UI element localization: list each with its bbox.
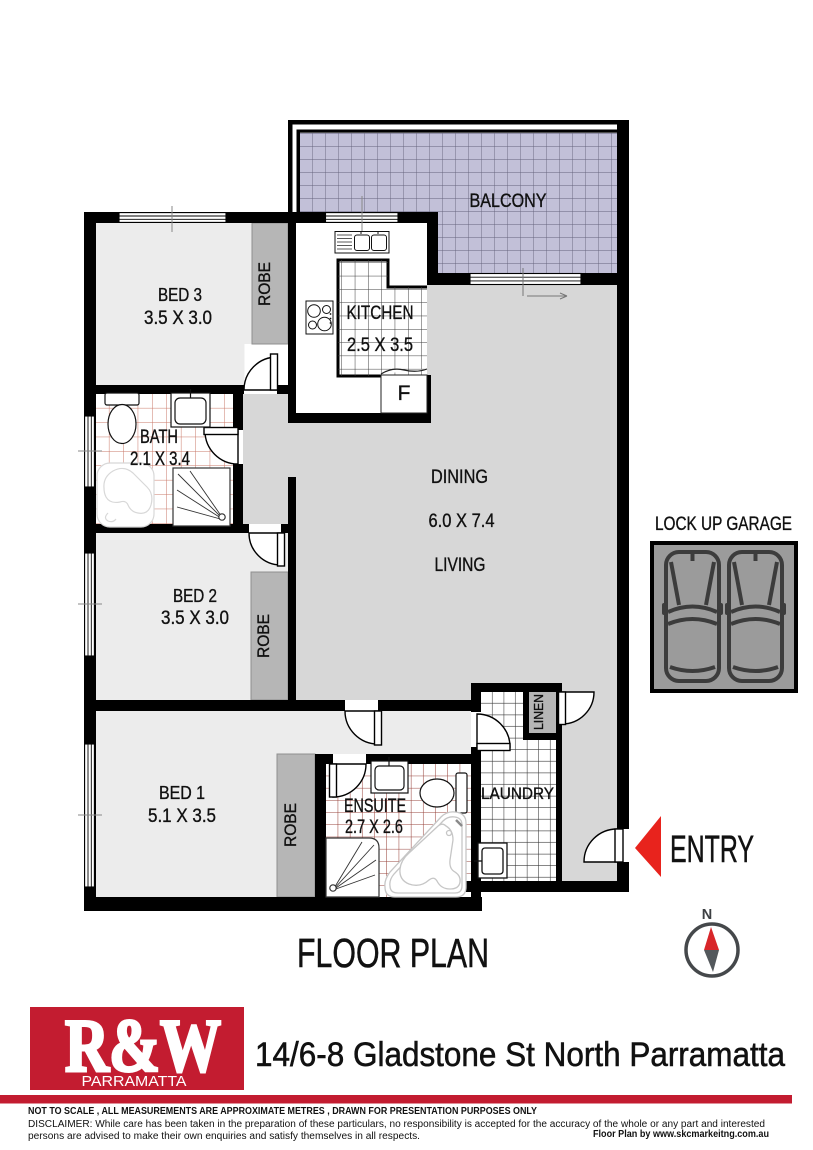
svg-text:14/6-8 Gladstone St North Parr: 14/6-8 Gladstone St North Parramatta	[255, 1036, 785, 1074]
svg-text:ENTRY: ENTRY	[670, 829, 754, 871]
svg-text:NOT TO SCALE , ALL MEASUREMENT: NOT TO SCALE , ALL MEASUREMENTS ARE APPR…	[28, 1105, 537, 1117]
svg-text:KITCHEN: KITCHEN	[347, 303, 414, 324]
svg-text:2.1 X 3.4: 2.1 X 3.4	[130, 449, 190, 470]
svg-text:2.5 X 3.5: 2.5 X 3.5	[347, 335, 413, 356]
svg-text:LAUNDRY: LAUNDRY	[481, 784, 554, 803]
svg-text:6.0 X 7.4: 6.0 X 7.4	[429, 511, 495, 532]
svg-text:LOCK UP GARAGE: LOCK UP GARAGE	[655, 514, 792, 535]
svg-text:3.5 X 3.0: 3.5 X 3.0	[161, 608, 229, 629]
svg-text:FLOOR PLAN: FLOOR PLAN	[297, 930, 489, 976]
svg-text:N: N	[702, 907, 712, 923]
svg-text:persons are advised to make th: persons are advised to make their own en…	[28, 1131, 420, 1142]
svg-text:Floor Plan by www.skcmarkeitng: Floor Plan by www.skcmarkeitng.com.au	[593, 1129, 769, 1140]
svg-text:DINING: DINING	[431, 467, 488, 488]
svg-text:ROBE: ROBE	[256, 262, 274, 306]
svg-text:BED 1: BED 1	[159, 783, 205, 803]
svg-text:3.5 X 3.0: 3.5 X 3.0	[144, 308, 212, 329]
svg-text:2.7 X 2.6: 2.7 X 2.6	[345, 817, 403, 838]
svg-text:F: F	[398, 382, 411, 405]
svg-text:5.1 X 3.5: 5.1 X 3.5	[148, 806, 216, 827]
svg-text:ROBE: ROBE	[282, 803, 300, 847]
svg-text:BED 2: BED 2	[173, 586, 217, 606]
svg-text:ROBE: ROBE	[255, 614, 273, 658]
svg-text:LINEN: LINEN	[532, 694, 546, 730]
svg-text:BALCONY: BALCONY	[470, 191, 547, 212]
svg-text:LIVING: LIVING	[435, 555, 486, 576]
svg-text:PARRAMATTA: PARRAMATTA	[82, 1074, 187, 1090]
svg-text:BED 3: BED 3	[158, 285, 202, 305]
svg-text:ENSUITE: ENSUITE	[344, 796, 406, 817]
svg-text:BATH: BATH	[140, 427, 178, 448]
